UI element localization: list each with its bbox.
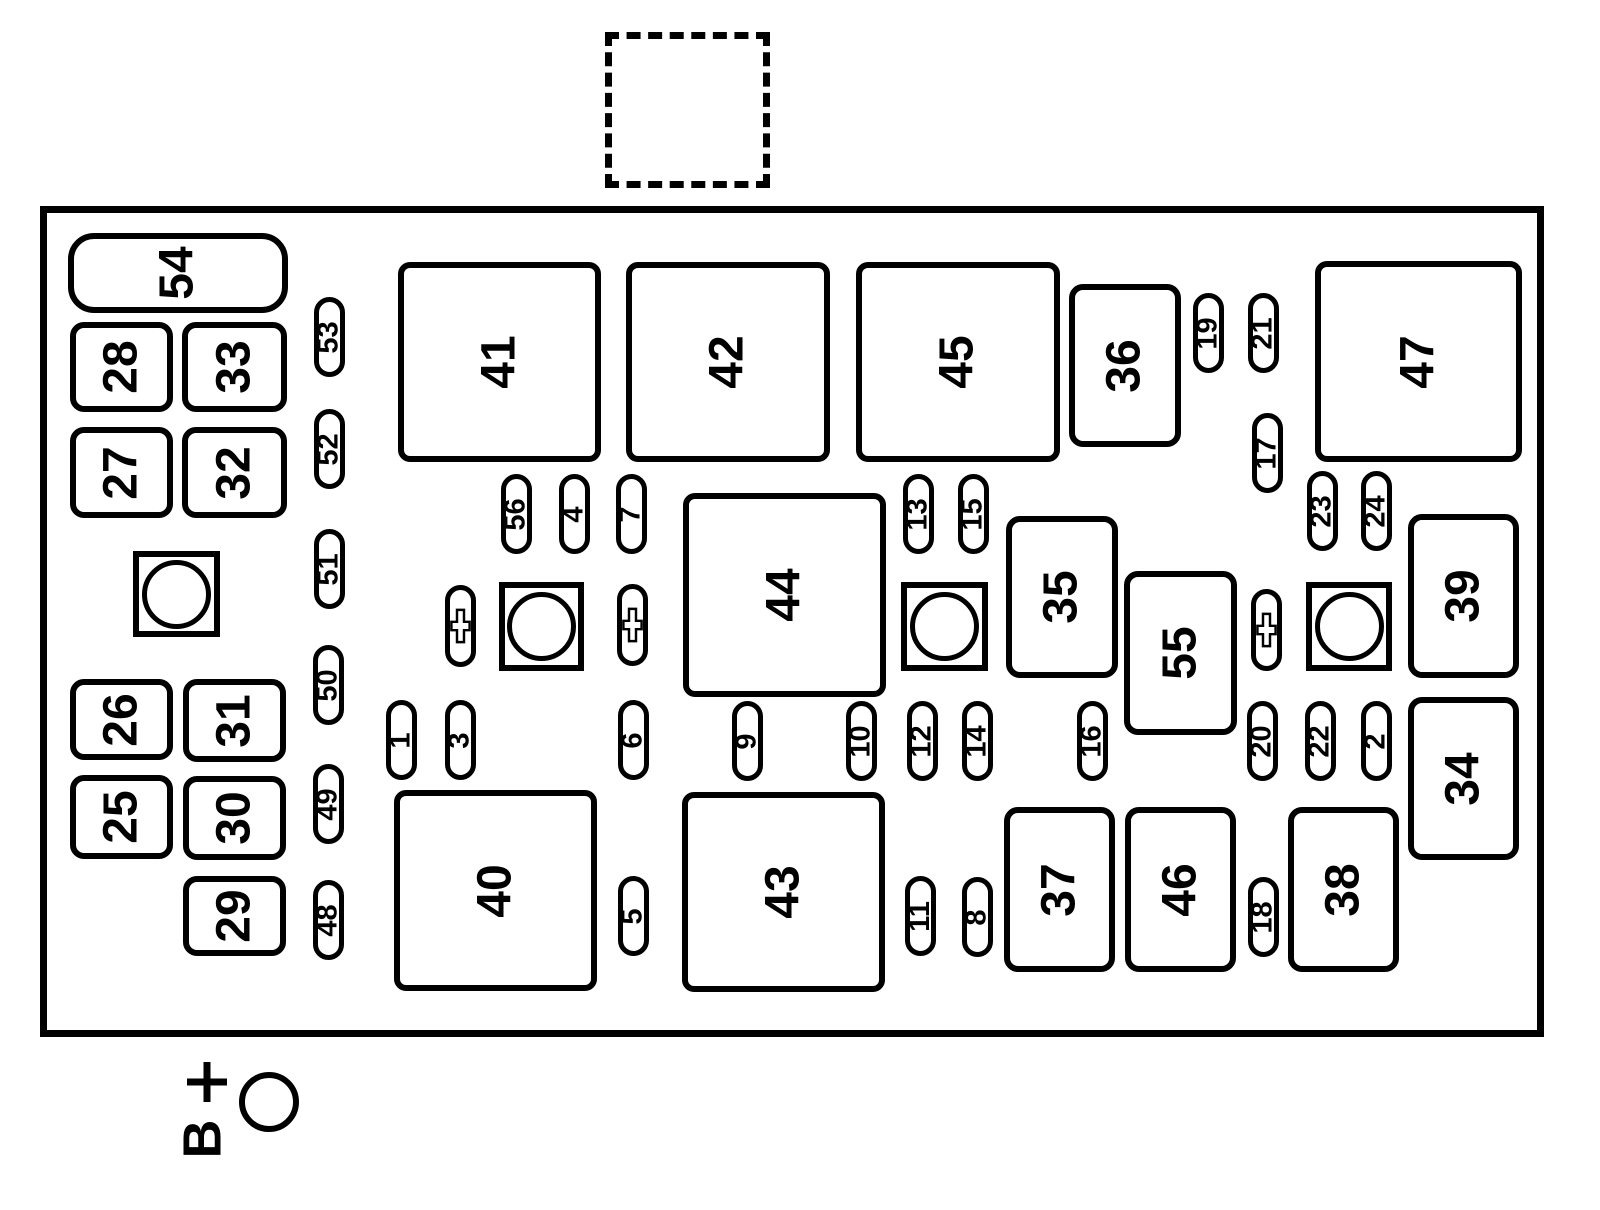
fuse-box-34: 34 bbox=[1408, 697, 1519, 860]
mount-hole bbox=[901, 582, 988, 671]
fuse-box-label: 44 bbox=[760, 568, 808, 621]
fuse-14: 14 bbox=[962, 701, 993, 781]
fuse-48: 48 bbox=[313, 880, 344, 960]
fuse-label: 56 bbox=[502, 498, 531, 530]
fuse-label: 7 bbox=[617, 506, 646, 522]
fuse-label: 8 bbox=[963, 909, 992, 925]
fuse-label: 50 bbox=[314, 669, 343, 701]
fuse-box-42: 42 bbox=[626, 262, 830, 462]
fuse-box-36: 36 bbox=[1069, 284, 1181, 447]
fuse-4: 4 bbox=[559, 474, 590, 554]
fuse-box-26: 26 bbox=[70, 679, 173, 760]
fuse-label: 9 bbox=[733, 733, 762, 749]
mount-hole bbox=[1306, 582, 1392, 671]
screw-circle-icon bbox=[910, 592, 979, 661]
fuse-label: 13 bbox=[904, 498, 933, 530]
fuse-56: 56 bbox=[501, 474, 532, 554]
cross-bolt-icon bbox=[1256, 605, 1277, 655]
fuse-3: 3 bbox=[445, 700, 476, 780]
fuse-box-label: 38 bbox=[1319, 863, 1367, 916]
fuse-label: 24 bbox=[1362, 495, 1391, 527]
fuse-label: 10 bbox=[847, 725, 876, 757]
fuse-box-32: 32 bbox=[182, 427, 287, 518]
battery-positive-symbol: B bbox=[160, 1050, 320, 1180]
fuse-9: 9 bbox=[732, 701, 763, 781]
fuse-box-45: 45 bbox=[856, 262, 1060, 462]
fuse-22: 22 bbox=[1305, 701, 1336, 781]
fuse-label: 12 bbox=[908, 725, 937, 757]
fuse-box-54: 54 bbox=[68, 233, 288, 313]
fuse-box-39: 39 bbox=[1408, 514, 1519, 678]
fuse-box-label: 39 bbox=[1439, 569, 1487, 622]
fuse-label: 22 bbox=[1306, 725, 1335, 757]
fuse-box-30: 30 bbox=[183, 776, 286, 860]
fuse-box-label: 43 bbox=[759, 865, 807, 918]
fuse-label: 49 bbox=[314, 788, 343, 820]
fuse-box-29: 29 bbox=[183, 876, 286, 956]
battery-letter: B bbox=[174, 1112, 230, 1166]
fuse-box-label: 29 bbox=[210, 889, 258, 942]
fuse-box-label: 36 bbox=[1101, 339, 1149, 392]
fuse-label: 53 bbox=[315, 321, 344, 353]
fuse-50: 50 bbox=[313, 645, 344, 725]
fuse-label: 18 bbox=[1249, 901, 1278, 933]
fuse-box-label: 33 bbox=[210, 340, 258, 393]
bolt-slot bbox=[445, 585, 476, 667]
fuse-18: 18 bbox=[1248, 877, 1279, 957]
screw-circle-icon bbox=[507, 592, 576, 661]
fuse-box-label: 40 bbox=[471, 864, 519, 917]
fuse-12: 12 bbox=[907, 701, 938, 781]
fuse-52: 52 bbox=[314, 409, 345, 489]
fuse-box-label: 37 bbox=[1035, 863, 1083, 916]
fuse-box-27: 27 bbox=[70, 427, 173, 518]
fuse-label: 15 bbox=[959, 498, 988, 530]
fuse-label: 51 bbox=[315, 553, 344, 585]
fuse-box-label: 26 bbox=[97, 693, 145, 746]
fuse-box-label: 46 bbox=[1156, 863, 1204, 916]
mount-hole bbox=[499, 582, 584, 671]
mount-hole bbox=[133, 551, 220, 637]
fuse-box-31: 31 bbox=[183, 679, 286, 762]
cross-bolt-icon bbox=[450, 601, 471, 651]
fuse-label: 6 bbox=[619, 732, 648, 748]
fuse-label: 17 bbox=[1253, 437, 1282, 469]
fuse-13: 13 bbox=[903, 474, 934, 554]
fuse-box-38: 38 bbox=[1288, 807, 1399, 972]
fuse-box-label: 30 bbox=[210, 791, 258, 844]
fuse-16: 16 bbox=[1077, 701, 1108, 781]
fuse-label: 5 bbox=[619, 908, 648, 924]
dashed-connector-box bbox=[605, 32, 770, 188]
fuse-label: 21 bbox=[1249, 317, 1278, 349]
fuse-box-label: 54 bbox=[154, 246, 202, 299]
fuse-2: 2 bbox=[1361, 701, 1392, 781]
bolt-slot bbox=[1251, 589, 1282, 671]
fuse-53: 53 bbox=[314, 297, 345, 377]
fuse-box-label: 31 bbox=[210, 694, 258, 747]
fuse-box-55: 55 bbox=[1124, 571, 1237, 735]
fuse-label: 23 bbox=[1308, 495, 1337, 527]
fuse-box-label: 27 bbox=[97, 446, 145, 499]
fuse-box-47: 47 bbox=[1315, 261, 1522, 462]
fuse-box-43: 43 bbox=[682, 792, 885, 992]
bolt-slot bbox=[617, 584, 648, 666]
fuse-1: 1 bbox=[386, 700, 417, 780]
cross-bolt-icon bbox=[622, 600, 643, 650]
fuse-label: 2 bbox=[1362, 733, 1391, 749]
fuse-box-label: 41 bbox=[475, 335, 523, 388]
fuse-label: 52 bbox=[315, 433, 344, 465]
fuse-box-label: 32 bbox=[210, 446, 258, 499]
fuse-box-label: 45 bbox=[934, 335, 982, 388]
fuse-box-label: 34 bbox=[1439, 752, 1487, 805]
fuse-box-label: 25 bbox=[97, 790, 145, 843]
fuse-box-44: 44 bbox=[683, 493, 886, 697]
fuse-label: 4 bbox=[560, 506, 589, 522]
fuse-label: 16 bbox=[1078, 725, 1107, 757]
screw-circle-icon bbox=[1315, 592, 1384, 661]
fuse-20: 20 bbox=[1247, 701, 1278, 781]
fuse-label: 19 bbox=[1194, 317, 1223, 349]
fuse-box-label: 42 bbox=[704, 335, 752, 388]
fuse-box-35: 35 bbox=[1006, 516, 1118, 678]
fuse-label: 11 bbox=[906, 901, 935, 932]
fuse-6: 6 bbox=[618, 700, 649, 780]
fuse-label: 14 bbox=[963, 725, 992, 757]
fuse-box-28: 28 bbox=[70, 322, 173, 412]
fuse-box-label: 55 bbox=[1156, 626, 1204, 679]
fuse-5: 5 bbox=[618, 876, 649, 956]
fuse-label: 1 bbox=[387, 732, 416, 748]
plus-icon bbox=[185, 1060, 229, 1104]
fuse-label: 20 bbox=[1248, 725, 1277, 757]
fuse-17: 17 bbox=[1252, 413, 1283, 493]
fuse-19: 19 bbox=[1193, 293, 1224, 373]
fuse-7: 7 bbox=[616, 474, 647, 554]
fuse-box-33: 33 bbox=[182, 322, 287, 412]
fuse-24: 24 bbox=[1361, 471, 1392, 551]
fuse-box-diagram: 5428332732263125302941424536474435553934… bbox=[0, 0, 1600, 1210]
battery-letter-glyph: B bbox=[175, 1120, 229, 1159]
fuse-box-label: 28 bbox=[97, 340, 145, 393]
fuse-11: 11 bbox=[905, 876, 936, 956]
fuse-box-37: 37 bbox=[1004, 807, 1115, 972]
fuse-51: 51 bbox=[314, 529, 345, 609]
fuse-box-25: 25 bbox=[70, 775, 173, 859]
fuse-8: 8 bbox=[962, 877, 993, 957]
fuse-21: 21 bbox=[1248, 293, 1279, 373]
screw-circle-icon bbox=[142, 560, 211, 629]
fuse-box-46: 46 bbox=[1125, 807, 1236, 972]
fuse-15: 15 bbox=[958, 474, 989, 554]
fuse-10: 10 bbox=[846, 701, 877, 781]
fuse-label: 3 bbox=[446, 732, 475, 748]
fuse-23: 23 bbox=[1307, 471, 1338, 551]
fuse-49: 49 bbox=[313, 764, 344, 844]
fuse-box-label: 35 bbox=[1038, 570, 1086, 623]
fuse-box-40: 40 bbox=[394, 790, 597, 991]
fuse-box-label: 47 bbox=[1394, 335, 1442, 388]
fuse-label: 48 bbox=[314, 904, 343, 936]
terminal-circle-icon bbox=[239, 1072, 299, 1132]
fuse-box-41: 41 bbox=[398, 262, 601, 462]
